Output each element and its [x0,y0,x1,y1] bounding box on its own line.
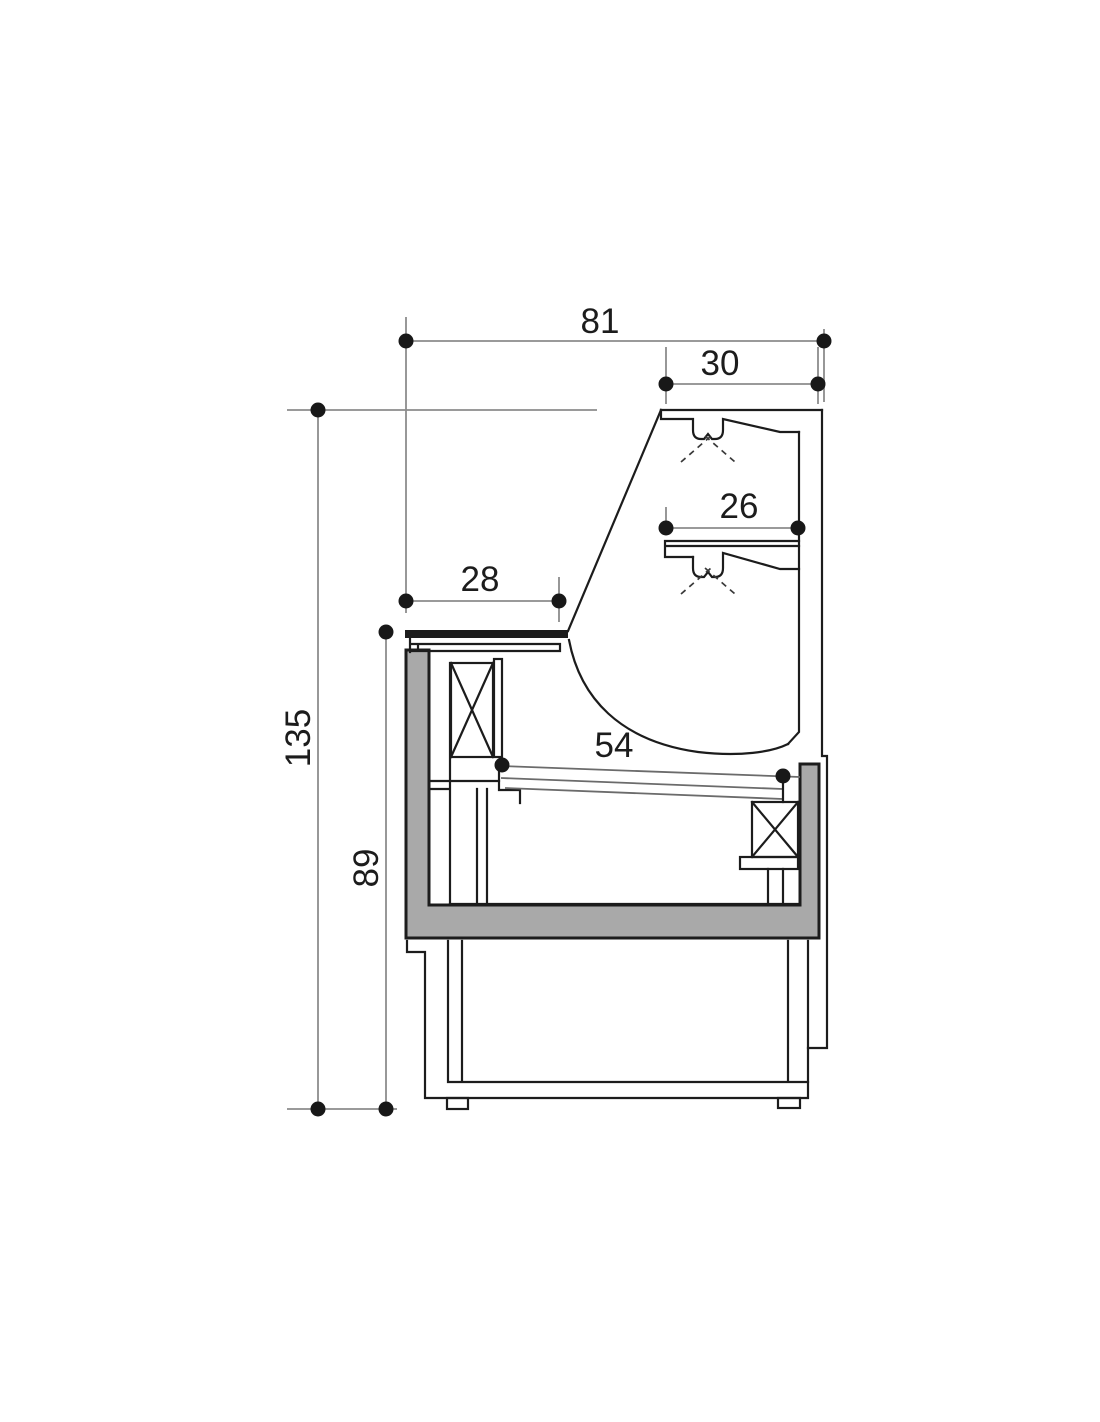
left-duct-strip [494,659,502,757]
left-internal-framing [429,663,499,904]
dim-135-dot-bottom [311,1102,326,1117]
dim-89-label: 89 [347,849,386,888]
dim-54-label: 54 [595,726,634,765]
dim-81-dot-right [817,334,832,349]
drawing-page: 81 30 26 28 54 [0,0,1100,1422]
insulated-tank-panel [406,650,819,938]
deck-front-bracket [499,771,520,803]
dimension-26: 26 [659,487,806,536]
cross-section-diagram: 81 30 26 28 54 [0,0,1100,1422]
dim-81-label: 81 [581,302,620,341]
dim-89-dot-top [379,625,394,640]
dimension-89: 89 [347,625,394,1117]
plinth-rail-and-posts [448,941,808,1082]
inner-back-panel [788,432,799,744]
dim-28-label: 28 [461,560,500,599]
right-fan-shelf [740,857,798,869]
display-deck-lines [501,766,800,799]
dim-30-dot-right [811,377,826,392]
front-glass-line [568,410,661,631]
dim-28-dot-right [552,594,567,609]
dimension-135: 135 [279,403,326,1117]
right-duct-legs [768,869,783,904]
dim-30-line [666,347,818,404]
dim-26-dot-right [791,521,806,536]
dim-54-dot-left [495,758,510,773]
dim-30-label: 30 [701,344,740,383]
dim-26-label: 26 [720,487,759,526]
dim-30-dot-left [659,377,674,392]
middle-shelf-light-housing [693,553,799,577]
canopy-lamp-rays [681,436,735,462]
dimension-81: 81 [399,302,832,402]
worktop-slab [405,630,568,638]
right-fan-box-braces [752,802,798,857]
dim-81-dot-left [399,334,414,349]
dim-54-dot-right [776,769,791,784]
left-fan-box-braces [451,663,493,757]
dim-28-dot-left [399,594,414,609]
right-foot [778,1098,800,1108]
canopy-light-housing [661,410,799,439]
dim-135-label: 135 [279,709,318,767]
left-foot [447,1098,468,1109]
dimension-30: 30 [659,344,826,404]
dim-89-dot-bottom [379,1102,394,1117]
worktop-under-frame [410,638,560,652]
dim-26-dot-left [659,521,674,536]
dim-135-dot-top [311,403,326,418]
dimension-28: 28 [399,560,567,622]
